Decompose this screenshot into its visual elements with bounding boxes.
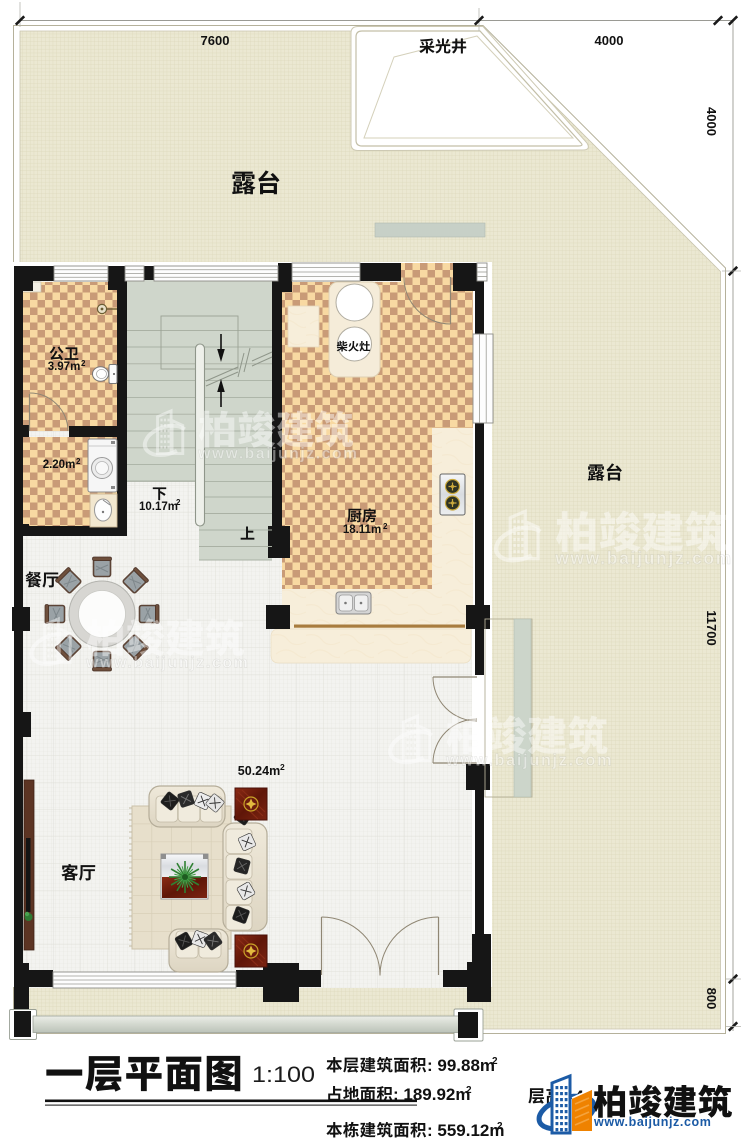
svg-text:10.17m: 10.17m <box>139 501 178 513</box>
svg-text:11700: 11700 <box>704 610 719 645</box>
svg-text:www.baijunjz.com: www.baijunjz.com <box>197 445 358 462</box>
svg-text:18.11m: 18.11m <box>343 524 381 536</box>
svg-text:: 559.12m: : 559.12m <box>427 1121 505 1140</box>
svg-text:www.baijunjz.com: www.baijunjz.com <box>593 1115 711 1129</box>
svg-text:4000: 4000 <box>595 33 624 48</box>
svg-text:www.baijunjz.com: www.baijunjz.com <box>445 752 613 770</box>
svg-text:2: 2 <box>383 522 388 531</box>
svg-text:2: 2 <box>81 359 86 368</box>
svg-text:2: 2 <box>466 1085 472 1096</box>
svg-text:www.baijunjz.com: www.baijunjz.com <box>554 548 733 568</box>
svg-text:: 189.92m: : 189.92m <box>393 1085 471 1104</box>
svg-text:4000: 4000 <box>704 107 719 136</box>
svg-text:1:100: 1:100 <box>252 1062 315 1087</box>
svg-text:2: 2 <box>76 457 81 466</box>
svg-text:2: 2 <box>492 1056 498 1067</box>
svg-text:2: 2 <box>176 498 181 507</box>
svg-text:: 99.88m: : 99.88m <box>427 1056 495 1075</box>
svg-text:3.97m: 3.97m <box>48 361 81 373</box>
svg-text:2.20m: 2.20m <box>43 459 76 471</box>
svg-text:www.baijunjz.com: www.baijunjz.com <box>85 654 250 671</box>
svg-text:2: 2 <box>280 762 285 772</box>
svg-text:7600: 7600 <box>201 33 230 48</box>
svg-text:50.24m: 50.24m <box>238 764 280 778</box>
svg-text:800: 800 <box>704 988 719 1010</box>
svg-text:2: 2 <box>497 1121 503 1132</box>
